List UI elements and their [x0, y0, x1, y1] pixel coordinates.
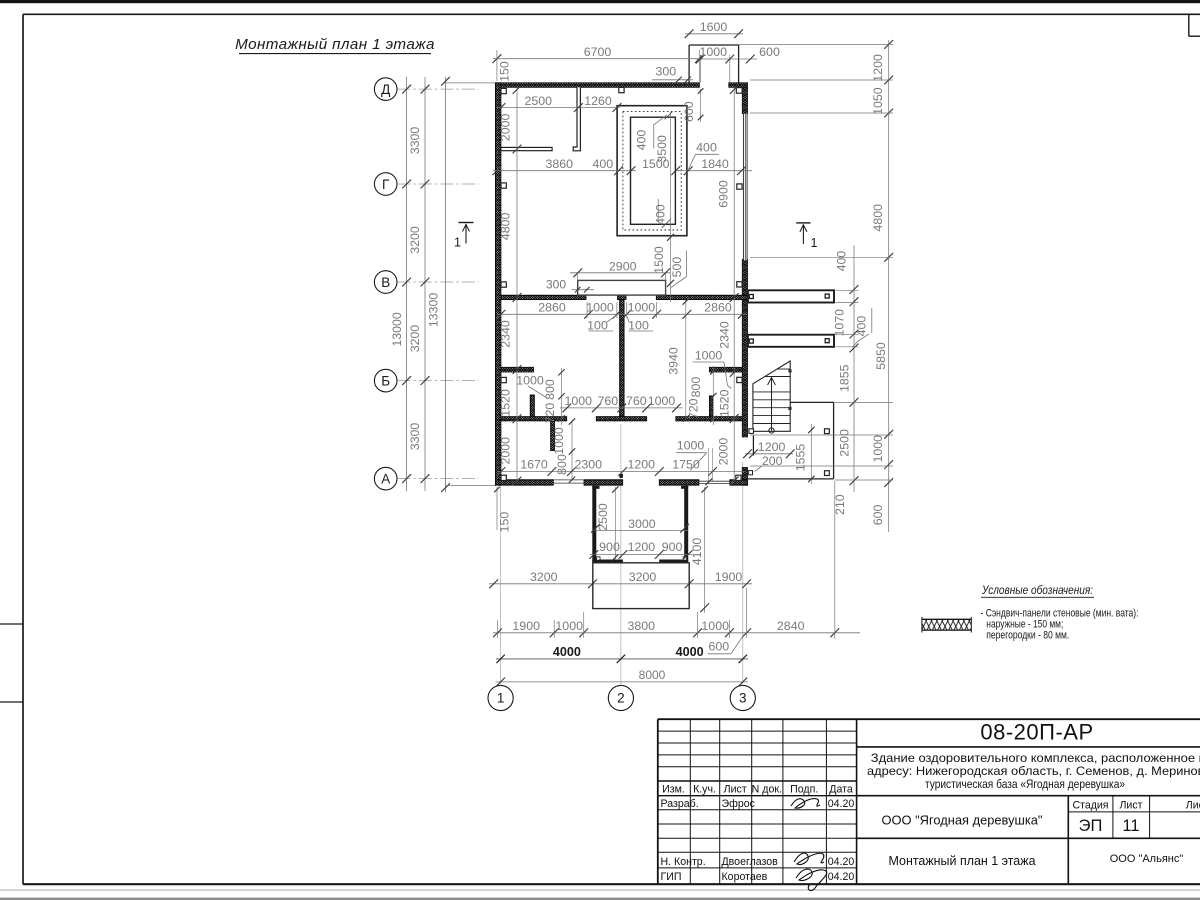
svg-text:13300: 13300: [427, 293, 441, 328]
svg-text:Условные обозначения:: Условные обозначения:: [981, 583, 1093, 597]
svg-text:1200: 1200: [871, 54, 885, 82]
svg-text:300: 300: [546, 278, 566, 292]
svg-text:4000: 4000: [676, 645, 704, 659]
svg-text:1260: 1260: [584, 94, 612, 108]
svg-text:500: 500: [670, 257, 684, 278]
svg-text:N док.: N док.: [752, 784, 782, 796]
svg-text:600: 600: [682, 101, 696, 122]
svg-text:3860: 3860: [546, 157, 574, 171]
svg-text:2500: 2500: [525, 94, 553, 108]
svg-text:04.20: 04.20: [828, 798, 855, 810]
svg-text:туристическая база «Ягодная де: туристическая база «Ягодная деревушка»: [925, 777, 1125, 791]
svg-text:Д: Д: [381, 82, 390, 97]
svg-text:1070: 1070: [833, 309, 847, 337]
svg-text:400: 400: [696, 140, 717, 154]
svg-text:1520: 1520: [499, 389, 513, 417]
svg-text:Монтажный план 1 этажа: Монтажный план 1 этажа: [889, 853, 1037, 868]
svg-text:3300: 3300: [408, 423, 422, 451]
svg-text:1000: 1000: [552, 427, 566, 455]
svg-text:1840: 1840: [701, 157, 729, 171]
svg-text:400: 400: [654, 204, 668, 225]
svg-text:Монтажный план 1 этажа: Монтажный план 1 этажа: [235, 36, 435, 53]
svg-text:Лист: Лист: [724, 784, 747, 796]
svg-text:1000: 1000: [695, 349, 723, 363]
svg-text:Коротаев: Коротаев: [722, 871, 768, 883]
svg-text:760: 760: [626, 394, 647, 408]
svg-text:3200: 3200: [629, 570, 657, 584]
svg-text:400: 400: [592, 157, 613, 171]
svg-text:2340: 2340: [499, 320, 513, 348]
svg-text:600: 600: [759, 45, 780, 59]
svg-text:300: 300: [655, 64, 676, 78]
svg-text:1000: 1000: [565, 394, 593, 408]
svg-text:2340: 2340: [718, 321, 732, 349]
svg-text:3200: 3200: [408, 325, 422, 353]
svg-text:04.20: 04.20: [828, 856, 855, 868]
svg-text:1000: 1000: [701, 619, 729, 633]
svg-text:150: 150: [497, 61, 511, 82]
svg-text:400: 400: [634, 130, 648, 151]
svg-text:400: 400: [854, 316, 868, 337]
svg-text:210: 210: [833, 494, 847, 515]
svg-text:Подп.: Подп.: [790, 784, 818, 796]
svg-text:адресу: Нижегородская область,: адресу: Нижегородская область, г. Семено…: [867, 764, 1200, 778]
svg-text:13000: 13000: [390, 312, 404, 347]
svg-text:В: В: [381, 275, 390, 290]
svg-text:720: 720: [543, 403, 557, 424]
svg-text:перегородки - 80 мм.: перегородки - 80 мм.: [986, 629, 1069, 641]
svg-text:1000: 1000: [648, 394, 676, 408]
svg-text:Двоеглазов: Двоеглазов: [722, 856, 779, 868]
svg-text:150: 150: [498, 512, 512, 533]
svg-text:1000: 1000: [628, 301, 656, 315]
svg-text:2000: 2000: [499, 114, 513, 142]
svg-text:1200: 1200: [628, 540, 656, 554]
svg-text:4100: 4100: [690, 538, 704, 566]
svg-text:1000: 1000: [586, 301, 614, 315]
svg-text:1520: 1520: [718, 389, 732, 417]
svg-text:2: 2: [617, 691, 625, 706]
svg-text:11: 11: [1122, 817, 1139, 835]
svg-text:2500: 2500: [596, 503, 610, 531]
svg-text:6900: 6900: [716, 180, 730, 208]
svg-text:1555: 1555: [794, 444, 808, 472]
svg-text:1000: 1000: [871, 435, 885, 463]
svg-text:3200: 3200: [408, 226, 422, 254]
svg-text:1600: 1600: [700, 20, 728, 34]
svg-text:Разраб.: Разраб.: [661, 798, 699, 810]
svg-text:100: 100: [628, 319, 649, 333]
svg-text:2000: 2000: [499, 437, 513, 465]
svg-text:2900: 2900: [609, 259, 637, 273]
svg-text:800: 800: [689, 377, 703, 398]
svg-text:1000: 1000: [677, 439, 705, 453]
svg-text:100: 100: [587, 319, 608, 333]
svg-text:1000: 1000: [555, 619, 583, 633]
svg-text:1500: 1500: [642, 157, 670, 171]
svg-text:4800: 4800: [499, 213, 513, 241]
svg-text:ЭП: ЭП: [1079, 817, 1103, 835]
svg-text:Эфрос: Эфрос: [722, 798, 756, 810]
svg-text:3940: 3940: [667, 347, 681, 375]
svg-text:1050: 1050: [871, 87, 885, 115]
svg-text:600: 600: [871, 504, 885, 525]
svg-text:2840: 2840: [777, 619, 805, 633]
svg-text:1: 1: [454, 236, 461, 250]
svg-text:Н. Контр.: Н. Контр.: [661, 856, 706, 868]
svg-text:1500: 1500: [652, 246, 666, 274]
svg-text:1000: 1000: [516, 373, 544, 387]
svg-text:А: А: [381, 471, 390, 486]
svg-text:ООО "Ягодная деревушка": ООО "Ягодная деревушка": [882, 813, 1043, 828]
svg-text:3: 3: [739, 691, 747, 706]
svg-text:1670: 1670: [520, 457, 548, 471]
svg-text:5850: 5850: [874, 342, 888, 370]
svg-text:1200: 1200: [758, 440, 786, 454]
svg-text:600: 600: [708, 639, 729, 653]
svg-text:2500: 2500: [838, 429, 852, 457]
svg-text:Лист: Лист: [1119, 800, 1142, 812]
svg-text:2300: 2300: [575, 457, 603, 471]
svg-text:2860: 2860: [704, 301, 732, 315]
svg-text:Б: Б: [381, 373, 390, 388]
svg-text:760: 760: [597, 394, 618, 408]
svg-text:Листов: Листов: [1186, 800, 1200, 812]
svg-text:2860: 2860: [538, 301, 566, 315]
svg-text:1200: 1200: [628, 457, 656, 471]
svg-text:1855: 1855: [838, 364, 852, 392]
svg-text:1: 1: [497, 691, 505, 706]
svg-text:4800: 4800: [871, 204, 885, 232]
svg-text:Изм.: Изм.: [662, 784, 685, 796]
svg-text:Здание оздоровительного компле: Здание оздоровительного комплекса, распо…: [871, 751, 1200, 765]
svg-text:Дата: Дата: [829, 784, 853, 796]
svg-text:Стадия: Стадия: [1072, 800, 1108, 812]
svg-text:6700: 6700: [584, 45, 612, 59]
svg-text:1900: 1900: [512, 619, 540, 633]
svg-text:3200: 3200: [530, 570, 558, 584]
svg-text:3000: 3000: [628, 517, 656, 531]
svg-text:8000: 8000: [639, 668, 666, 682]
svg-text:1000: 1000: [700, 45, 728, 59]
svg-text:1: 1: [811, 236, 818, 250]
svg-text:ООО "Альянс": ООО "Альянс": [1110, 853, 1184, 865]
svg-text:ГИП: ГИП: [661, 871, 682, 883]
svg-text:900: 900: [662, 540, 683, 554]
svg-text:3800: 3800: [628, 619, 656, 633]
svg-text:2000: 2000: [717, 438, 731, 466]
svg-text:К.уч.: К.уч.: [693, 784, 716, 796]
svg-text:900: 900: [599, 540, 620, 554]
svg-text:400: 400: [834, 251, 848, 272]
svg-text:04.20: 04.20: [828, 871, 855, 883]
svg-text:4000: 4000: [553, 645, 581, 659]
svg-text:Г: Г: [382, 177, 390, 192]
svg-text:08-20П-АР: 08-20П-АР: [980, 720, 1093, 745]
svg-text:3300: 3300: [408, 127, 422, 155]
svg-text:1900: 1900: [715, 570, 743, 584]
